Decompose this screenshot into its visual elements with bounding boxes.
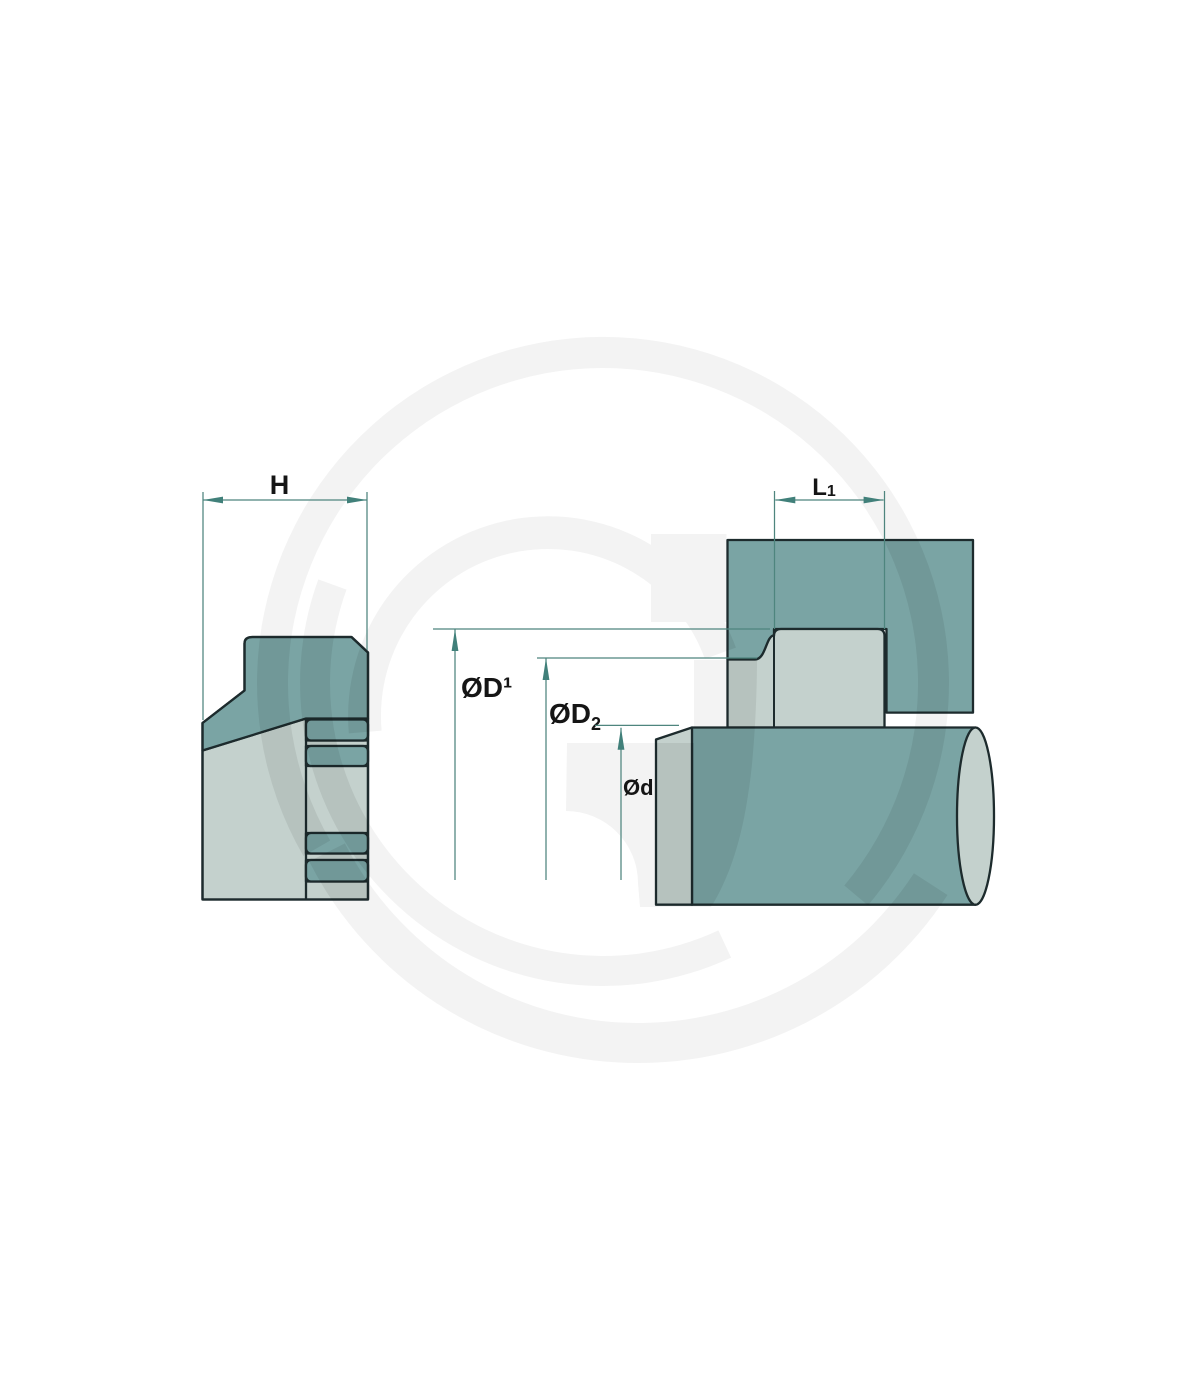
svg-text:H: H — [270, 470, 290, 500]
svg-text:ØD¹: ØD¹ — [461, 672, 512, 703]
svg-text:Ød: Ød — [623, 775, 654, 800]
